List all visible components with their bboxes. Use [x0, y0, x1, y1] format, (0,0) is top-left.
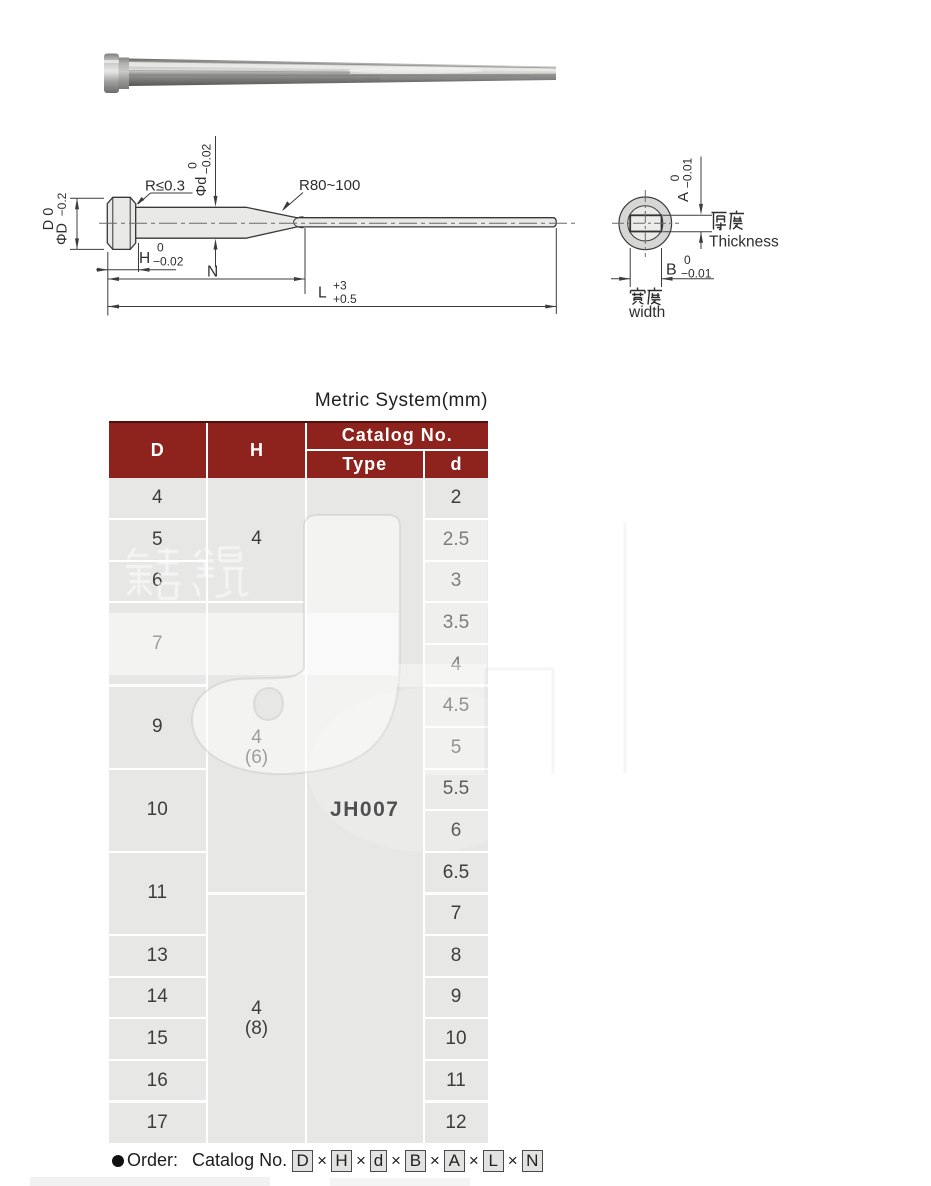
svg-text:Thickness: Thickness: [709, 234, 779, 251]
svg-text:width: width: [628, 304, 665, 321]
svg-text:B: B: [666, 262, 677, 279]
svg-text:L: L: [318, 285, 327, 302]
svg-text:+3: +3: [333, 279, 347, 293]
svg-text:0: 0: [684, 253, 691, 267]
svg-text:0: 0: [157, 241, 164, 255]
svg-text:ΦD: ΦD: [54, 223, 70, 245]
svg-text:−0.01: −0.01: [681, 157, 695, 188]
svg-text:0: 0: [186, 162, 200, 169]
svg-text:Φd: Φd: [194, 177, 210, 197]
svg-text:N: N: [207, 264, 218, 281]
svg-text:−0.2: −0.2: [55, 192, 69, 216]
svg-text:−0.02: −0.02: [200, 143, 214, 174]
svg-text:R≤0.3: R≤0.3: [145, 178, 185, 195]
svg-text:A: A: [675, 192, 692, 202]
svg-text:+0.5: +0.5: [333, 292, 357, 306]
svg-text:R80~100: R80~100: [299, 177, 360, 194]
svg-text:−0.02: −0.02: [153, 255, 184, 269]
svg-text:H: H: [139, 250, 150, 267]
